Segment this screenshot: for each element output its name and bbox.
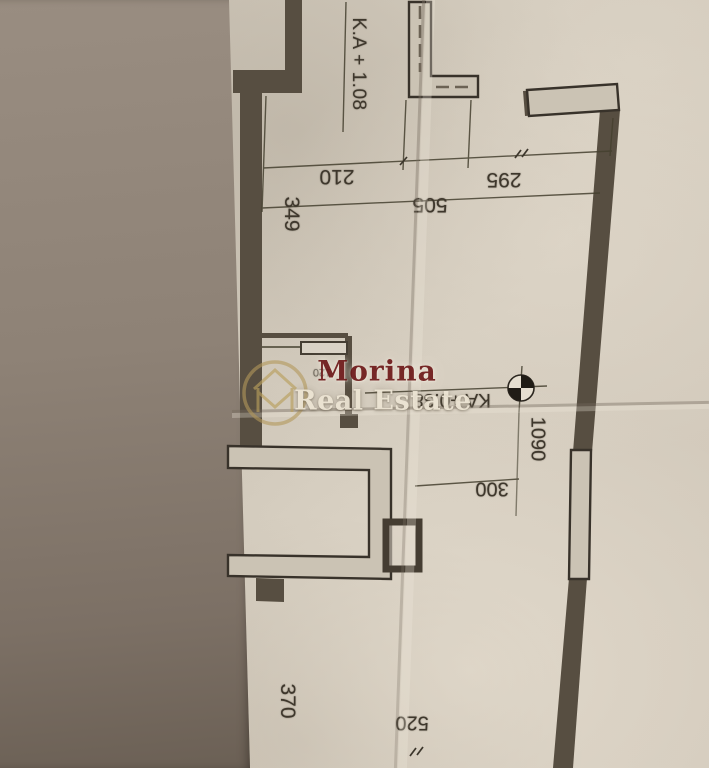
level-annotation-upper: K.A + 1.08 — [347, 17, 369, 110]
dimension-bottom: 520 — [395, 711, 428, 734]
watermark-tagline: Real Estate — [294, 386, 472, 417]
dimension-left-upper: 349 — [279, 196, 303, 231]
level-marker-icon — [508, 375, 534, 401]
dimension-ticks — [400, 149, 528, 756]
shaft-symbol — [386, 522, 419, 569]
door-leaf — [262, 342, 347, 354]
dimension-left-lower: 370 — [275, 683, 299, 718]
dimension-top-right: 295 — [486, 167, 521, 191]
watermark-brand: Morina — [317, 355, 437, 388]
dimension-top-left: 210 — [319, 164, 354, 188]
dimension-middle: 300 — [475, 477, 508, 500]
dimension-top-total: 505 — [412, 192, 447, 216]
floorplan-photo: 210 295 505 349 K.A + 1.08 KA +0.38 1090… — [0, 0, 709, 768]
dimension-right-wall: 1090 — [526, 417, 549, 462]
